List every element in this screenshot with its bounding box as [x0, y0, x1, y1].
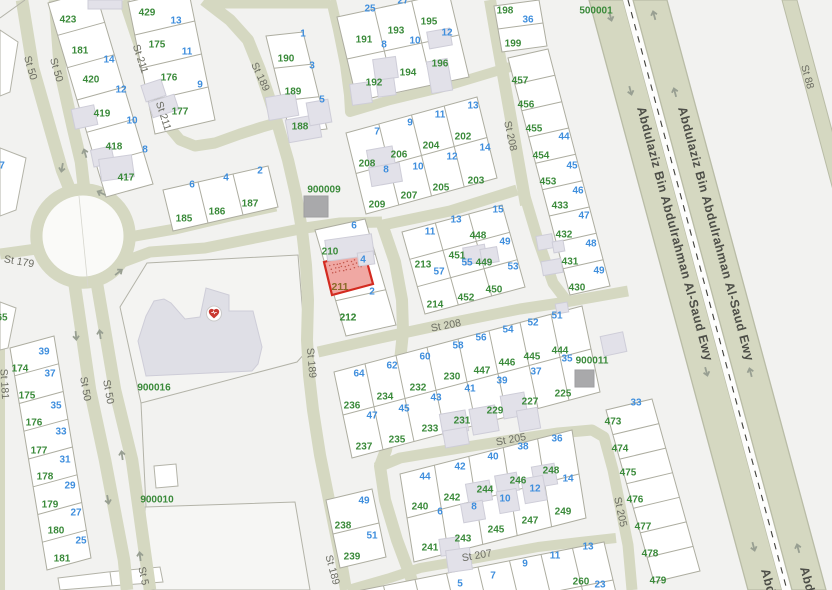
- svg-text:195: 195: [421, 17, 438, 28]
- svg-text:13: 13: [450, 215, 462, 226]
- svg-text:10: 10: [409, 36, 421, 47]
- svg-text:29: 29: [64, 481, 76, 492]
- svg-text:39: 39: [38, 347, 50, 358]
- svg-text:475: 475: [620, 468, 637, 479]
- svg-text:445: 445: [524, 352, 541, 363]
- svg-text:49: 49: [358, 496, 370, 507]
- svg-text:430: 430: [569, 283, 586, 294]
- svg-text:431: 431: [562, 257, 579, 268]
- svg-text:227: 227: [522, 397, 539, 408]
- svg-text:44: 44: [419, 472, 431, 483]
- svg-text:207: 207: [401, 191, 418, 202]
- svg-text:205: 205: [433, 183, 450, 194]
- svg-text:186: 186: [209, 207, 226, 218]
- svg-text:40: 40: [487, 452, 499, 463]
- svg-text:192: 192: [366, 78, 383, 89]
- svg-text:4: 4: [360, 255, 366, 266]
- svg-text:230: 230: [444, 372, 461, 383]
- svg-text:13: 13: [582, 542, 594, 553]
- svg-text:417: 417: [118, 173, 135, 184]
- svg-text:27: 27: [397, 0, 409, 7]
- svg-text:181: 181: [54, 554, 71, 565]
- svg-text:53: 53: [507, 262, 519, 273]
- svg-text:13: 13: [170, 16, 182, 27]
- svg-text:194: 194: [400, 68, 417, 79]
- svg-text:48: 48: [585, 239, 597, 250]
- svg-text:8: 8: [142, 145, 148, 156]
- svg-text:900016: 900016: [137, 383, 171, 394]
- svg-text:233: 233: [422, 424, 439, 435]
- svg-text:191: 191: [356, 35, 373, 46]
- svg-text:56: 56: [475, 333, 487, 344]
- svg-text:175: 175: [149, 40, 166, 51]
- svg-text:213: 213: [415, 260, 432, 271]
- svg-text:38: 38: [517, 442, 529, 453]
- svg-text:St 181: St 181: [0, 369, 11, 400]
- svg-text:479: 479: [650, 576, 667, 587]
- svg-text:236: 236: [344, 401, 361, 412]
- svg-text:15: 15: [492, 205, 504, 216]
- svg-text:418: 418: [106, 142, 123, 153]
- svg-text:55: 55: [461, 258, 473, 269]
- svg-text:203: 203: [468, 176, 485, 187]
- svg-text:7: 7: [0, 161, 5, 172]
- svg-text:175: 175: [19, 391, 36, 402]
- svg-text:12: 12: [441, 28, 453, 39]
- svg-text:209: 209: [369, 200, 386, 211]
- svg-text:242: 242: [444, 493, 461, 504]
- svg-text:43: 43: [430, 393, 442, 404]
- svg-text:46: 46: [572, 186, 584, 197]
- svg-text:31: 31: [59, 455, 71, 466]
- svg-text:248: 248: [543, 466, 560, 477]
- svg-text:177: 177: [172, 107, 189, 118]
- svg-text:176: 176: [26, 418, 43, 429]
- svg-text:199: 199: [505, 39, 522, 50]
- svg-text:500001: 500001: [579, 6, 613, 17]
- svg-text:41: 41: [464, 384, 476, 395]
- svg-text:35: 35: [561, 354, 573, 365]
- svg-text:450: 450: [486, 285, 503, 296]
- svg-text:231: 231: [454, 416, 471, 427]
- svg-text:246: 246: [510, 476, 527, 487]
- svg-text:52: 52: [527, 318, 539, 329]
- svg-text:181: 181: [72, 46, 89, 57]
- svg-text:185: 185: [176, 214, 193, 225]
- svg-text:474: 474: [612, 444, 629, 455]
- svg-text:62: 62: [386, 361, 398, 372]
- svg-text:178: 178: [37, 472, 54, 483]
- svg-text:11: 11: [435, 110, 446, 121]
- svg-text:5: 5: [457, 579, 463, 590]
- svg-text:47: 47: [578, 211, 590, 222]
- svg-text:432: 432: [556, 230, 573, 241]
- svg-text:211: 211: [332, 281, 349, 293]
- svg-text:210: 210: [322, 247, 339, 258]
- svg-text:449: 449: [476, 258, 493, 269]
- svg-text:14: 14: [562, 474, 574, 485]
- svg-text:2: 2: [369, 287, 375, 298]
- svg-text:241: 241: [422, 543, 439, 554]
- svg-text:6: 6: [437, 507, 443, 518]
- svg-text:243: 243: [455, 534, 472, 545]
- svg-text:476: 476: [627, 495, 644, 506]
- svg-text:457: 457: [512, 76, 529, 87]
- svg-text:478: 478: [642, 549, 659, 560]
- svg-text:234: 234: [377, 392, 394, 403]
- svg-text:6: 6: [189, 180, 195, 191]
- svg-text:42: 42: [454, 462, 466, 473]
- svg-text:473: 473: [605, 417, 622, 428]
- svg-text:47: 47: [366, 411, 378, 422]
- svg-text:260: 260: [573, 577, 590, 588]
- svg-text:180: 180: [48, 526, 65, 537]
- svg-text:11: 11: [550, 551, 561, 562]
- svg-text:5: 5: [319, 95, 325, 106]
- svg-text:6: 6: [351, 221, 357, 232]
- svg-text:176: 176: [161, 73, 178, 84]
- svg-text:238: 238: [335, 521, 352, 532]
- svg-text:51: 51: [551, 311, 563, 322]
- svg-text:33: 33: [55, 427, 67, 438]
- svg-text:477: 477: [635, 522, 652, 533]
- svg-text:9: 9: [407, 118, 413, 129]
- svg-text:25: 25: [75, 536, 87, 547]
- svg-text:229: 229: [487, 406, 504, 417]
- svg-text:446: 446: [499, 358, 516, 369]
- svg-text:8: 8: [471, 502, 477, 513]
- svg-text:177: 177: [31, 446, 48, 457]
- svg-text:8: 8: [381, 40, 387, 51]
- svg-text:455: 455: [526, 124, 543, 135]
- svg-text:45: 45: [566, 161, 578, 172]
- svg-text:232: 232: [410, 383, 427, 394]
- svg-text:44: 44: [558, 132, 570, 143]
- svg-text:189: 189: [285, 87, 302, 98]
- svg-text:247: 247: [522, 516, 539, 527]
- svg-text:244: 244: [477, 485, 494, 496]
- svg-text:57: 57: [433, 267, 445, 278]
- svg-text:10: 10: [126, 116, 138, 127]
- svg-text:49: 49: [593, 266, 605, 277]
- svg-text:900010: 900010: [140, 495, 174, 506]
- svg-text:14: 14: [103, 55, 115, 66]
- svg-text:429: 429: [139, 8, 156, 19]
- svg-text:12: 12: [446, 152, 458, 163]
- svg-text:190: 190: [278, 54, 295, 65]
- svg-text:64: 64: [353, 369, 365, 380]
- svg-text:4: 4: [223, 173, 229, 184]
- svg-text:208: 208: [359, 159, 376, 170]
- svg-text:900009: 900009: [307, 185, 341, 196]
- svg-text:12: 12: [115, 85, 127, 96]
- svg-text:3: 3: [309, 61, 315, 72]
- svg-text:54: 54: [502, 325, 514, 336]
- svg-text:237: 237: [356, 442, 373, 453]
- svg-text:198: 198: [497, 6, 514, 17]
- svg-text:13: 13: [467, 101, 479, 112]
- svg-text:188: 188: [292, 122, 309, 133]
- svg-text:452: 452: [458, 293, 475, 304]
- svg-text:33: 33: [630, 398, 642, 409]
- svg-text:27: 27: [70, 508, 82, 519]
- svg-text:456: 456: [518, 100, 535, 111]
- svg-text:423: 423: [60, 15, 77, 26]
- svg-text:35: 35: [50, 401, 62, 412]
- svg-text:212: 212: [340, 313, 357, 324]
- svg-text:51: 51: [366, 531, 378, 542]
- svg-text:39: 39: [496, 376, 508, 387]
- svg-text:37: 37: [530, 367, 542, 378]
- svg-text:8: 8: [383, 165, 389, 176]
- svg-text:206: 206: [391, 150, 408, 161]
- svg-text:196: 196: [432, 59, 449, 70]
- svg-text:25: 25: [364, 4, 376, 15]
- svg-text:225: 225: [555, 389, 572, 400]
- svg-text:37: 37: [44, 369, 56, 380]
- svg-text:193: 193: [388, 26, 405, 37]
- svg-text:11: 11: [182, 47, 193, 58]
- svg-text:58: 58: [452, 341, 464, 352]
- svg-text:1: 1: [300, 29, 306, 40]
- svg-text:420: 420: [83, 75, 100, 86]
- svg-text:174: 174: [12, 364, 29, 375]
- svg-text:10: 10: [412, 162, 424, 173]
- svg-text:202: 202: [455, 132, 472, 143]
- svg-text:60: 60: [419, 352, 431, 363]
- svg-text:36: 36: [551, 434, 563, 445]
- svg-text:36: 36: [522, 15, 534, 26]
- svg-text:23: 23: [594, 580, 606, 590]
- svg-text:11: 11: [425, 227, 436, 238]
- svg-text:2: 2: [257, 166, 263, 177]
- svg-text:204: 204: [423, 141, 440, 152]
- svg-text:240: 240: [412, 502, 429, 513]
- svg-text:433: 433: [552, 201, 569, 212]
- svg-text:447: 447: [474, 366, 491, 377]
- svg-text:214: 214: [427, 300, 444, 311]
- svg-text:239: 239: [344, 552, 361, 563]
- svg-text:448: 448: [470, 231, 487, 242]
- svg-text:235: 235: [389, 435, 406, 446]
- svg-text:7: 7: [374, 127, 380, 138]
- svg-text:179: 179: [42, 500, 59, 511]
- svg-text:454: 454: [533, 151, 550, 162]
- svg-text:7: 7: [490, 571, 496, 582]
- svg-text:9: 9: [197, 80, 203, 91]
- svg-text:65: 65: [0, 313, 8, 324]
- svg-text:453: 453: [540, 177, 557, 188]
- svg-text:10: 10: [499, 494, 511, 505]
- svg-text:12: 12: [529, 484, 541, 495]
- svg-text:900011: 900011: [576, 356, 609, 367]
- svg-text:45: 45: [398, 404, 410, 415]
- svg-text:49: 49: [499, 237, 511, 248]
- svg-text:249: 249: [555, 507, 572, 518]
- svg-text:245: 245: [488, 525, 505, 536]
- svg-text:187: 187: [242, 199, 259, 210]
- svg-text:419: 419: [94, 109, 111, 120]
- svg-text:14: 14: [479, 143, 491, 154]
- svg-text:9: 9: [522, 559, 528, 570]
